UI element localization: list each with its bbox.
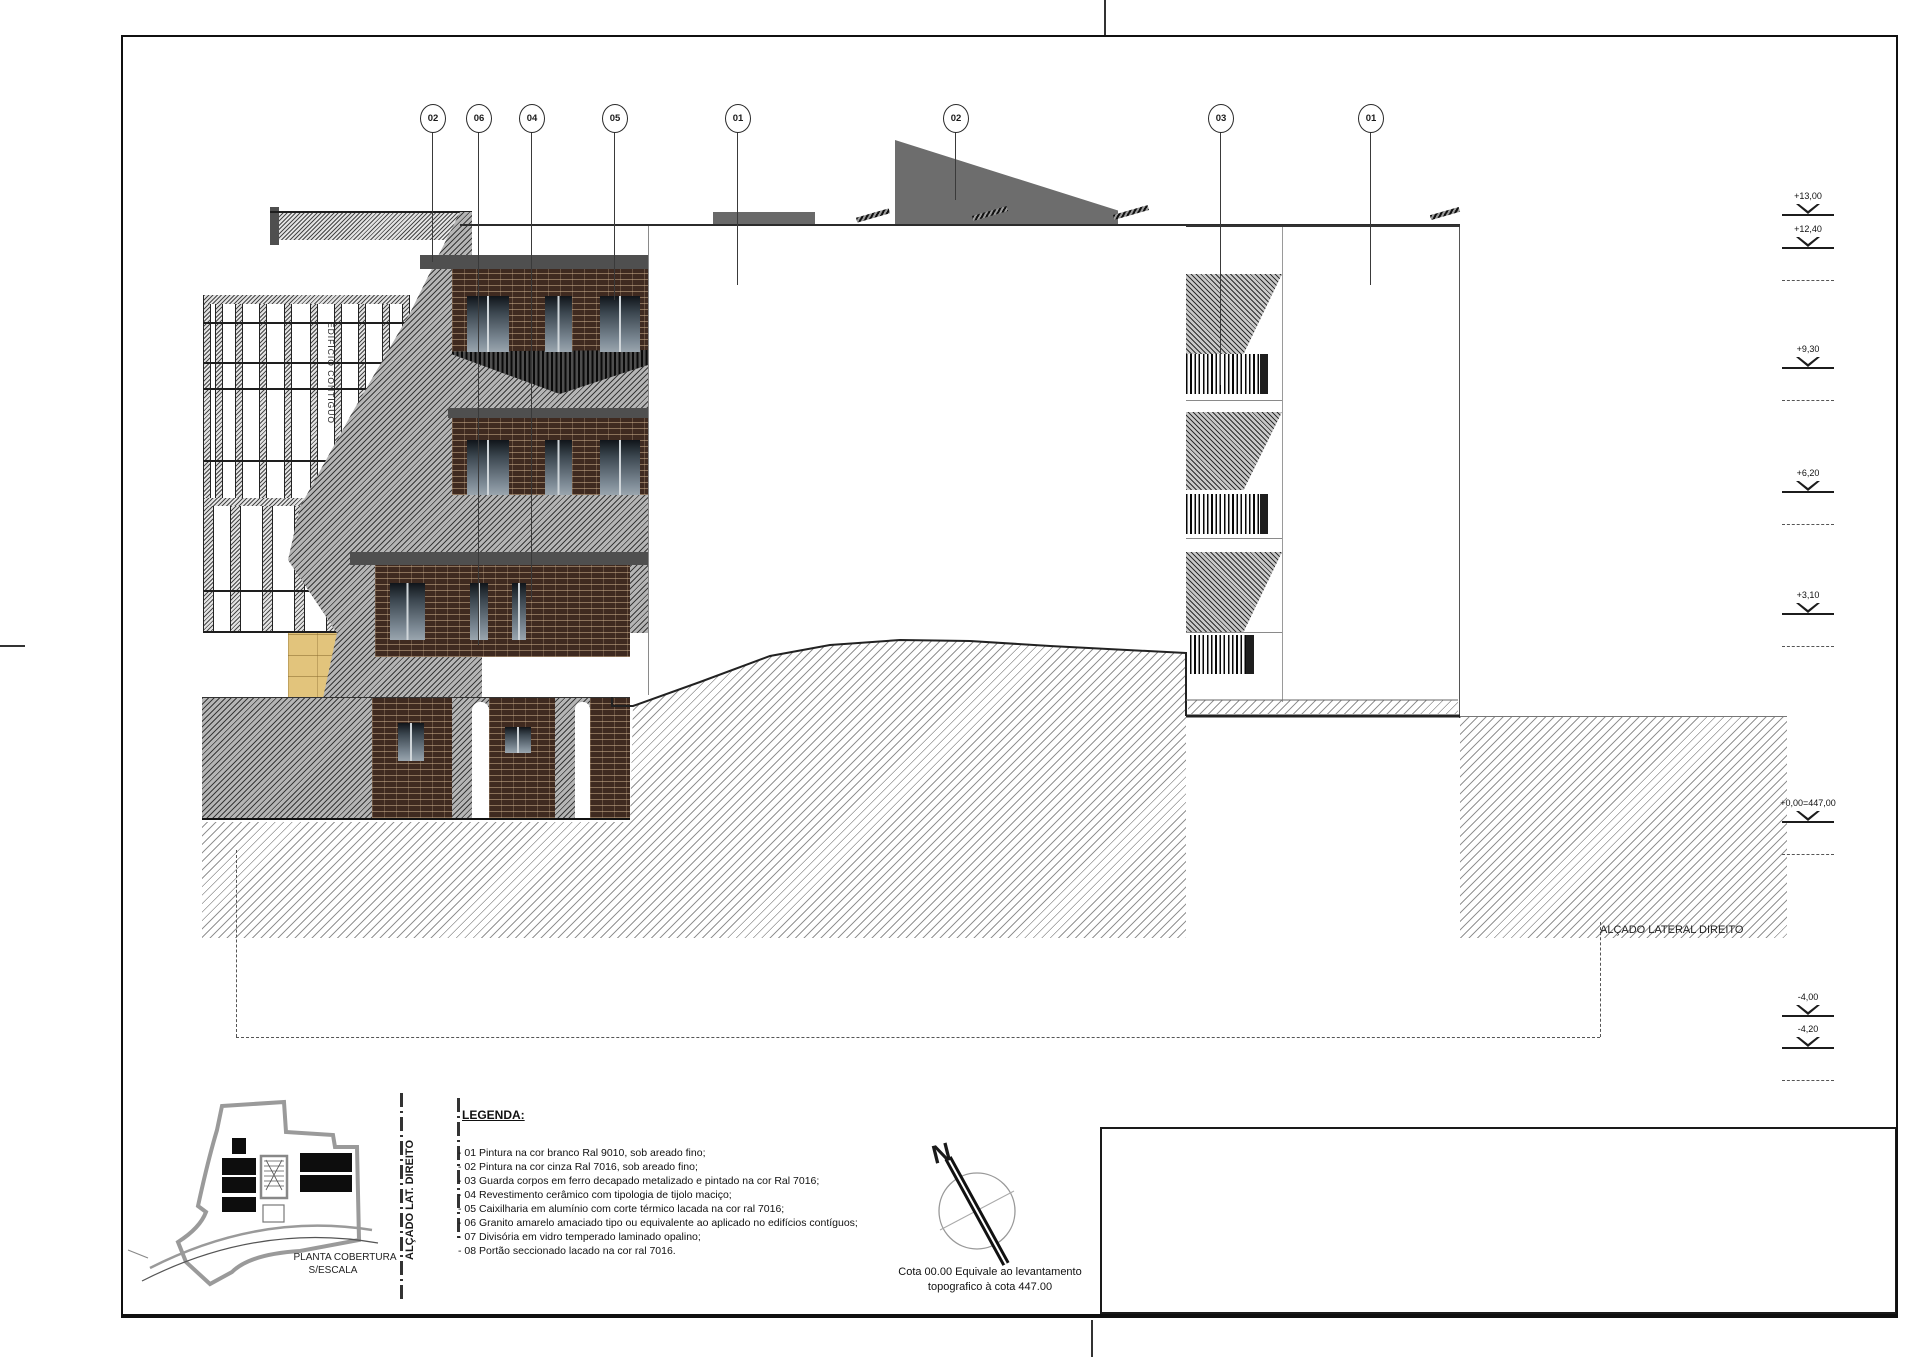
- fold-mark-top: [1104, 0, 1106, 35]
- drawing-sheet: EDIFÍCIO CONTÍGUO: [0, 0, 1920, 1357]
- fold-mark-left: [0, 645, 25, 647]
- sheet-border: [121, 35, 1898, 1318]
- fold-mark-bottom: [1091, 1320, 1093, 1357]
